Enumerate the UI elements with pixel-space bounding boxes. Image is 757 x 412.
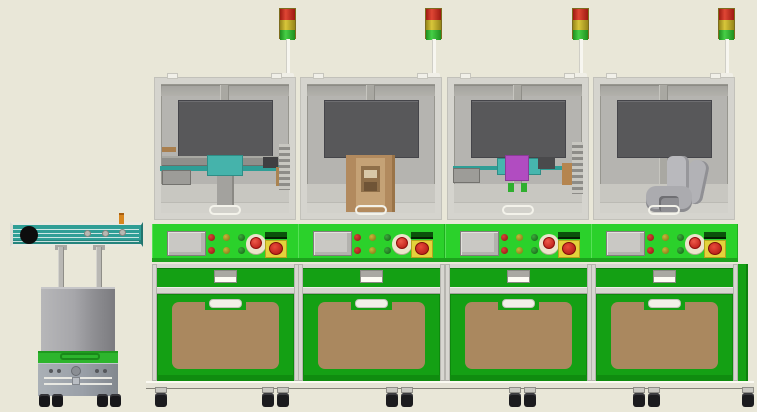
agv-wheel xyxy=(52,394,63,407)
caster-wheel xyxy=(400,387,414,408)
station-4 xyxy=(591,0,738,412)
indicator-light-yellow xyxy=(223,234,230,241)
indicator-light-yellow xyxy=(369,247,376,254)
machine-base-rail xyxy=(146,381,754,389)
agv-wheel xyxy=(110,394,121,407)
caster-tire xyxy=(386,393,398,407)
caster-wheel xyxy=(523,387,537,408)
hmi-panel xyxy=(167,231,206,256)
indicator-light-yellow xyxy=(662,247,669,254)
caster-tire xyxy=(509,393,521,407)
agv-drive-pulley xyxy=(20,226,38,244)
cabinet-door-panel xyxy=(172,302,279,369)
indicator-light-green xyxy=(238,247,245,254)
hmi-panel xyxy=(313,231,352,256)
cyan-carrier xyxy=(207,155,243,176)
control-box xyxy=(162,170,191,185)
gripper-finger xyxy=(521,183,527,192)
indicator-light-red xyxy=(647,247,654,254)
cabinet-door-handle xyxy=(502,299,535,308)
cabinet-door-handle xyxy=(648,299,681,308)
enclosure-door-handle xyxy=(355,205,387,215)
indicator-light-yellow xyxy=(662,234,669,241)
caster-wheel xyxy=(154,387,168,408)
indicator-light-red xyxy=(501,247,508,254)
cabinet-mid-rail xyxy=(450,287,587,294)
side-shelf xyxy=(162,147,176,152)
gear-stack xyxy=(279,144,290,190)
caster-wheel xyxy=(741,387,755,408)
main-switch-knob xyxy=(708,242,722,255)
indicator-light-red xyxy=(208,247,215,254)
caster-wheel xyxy=(632,387,646,408)
agv-orange-fitting xyxy=(119,213,124,224)
main-switch-knob xyxy=(562,242,576,255)
cabinet-end-panel xyxy=(738,264,748,381)
main-switch-plate xyxy=(558,232,580,239)
hmi-panel xyxy=(606,231,645,256)
indicator-light-green xyxy=(531,234,538,241)
caster-tire xyxy=(742,393,754,407)
caster-tire xyxy=(401,393,413,407)
indicator-light-green xyxy=(384,247,391,254)
caster-tire xyxy=(648,393,660,407)
agv-center-knob xyxy=(71,366,81,376)
drawer-handle xyxy=(214,270,237,283)
caster-wheel xyxy=(261,387,275,408)
agv-roller xyxy=(102,230,109,237)
cabinet-door-handle xyxy=(209,299,242,308)
indicator-light-yellow xyxy=(516,247,523,254)
caster-wheel xyxy=(385,387,399,408)
caster-wheel xyxy=(508,387,522,408)
station-2 xyxy=(298,0,445,412)
enclosure-door-handle xyxy=(209,205,241,215)
indicator-light-green xyxy=(531,247,538,254)
agv-band-recess xyxy=(60,353,100,360)
gripper-finger xyxy=(508,183,514,192)
agv-wheel xyxy=(39,394,50,407)
emergency-stop-button xyxy=(396,237,408,249)
indicator-light-red xyxy=(354,234,361,241)
support-leg xyxy=(217,176,234,206)
fixture-slot xyxy=(364,182,377,191)
main-switch-plate xyxy=(411,232,433,239)
drive-block xyxy=(538,157,555,169)
drawer-handle xyxy=(360,270,383,283)
cabinet-door-handle xyxy=(355,299,388,308)
agv-button xyxy=(103,369,107,373)
hmi-panel xyxy=(460,231,499,256)
indicator-light-yellow xyxy=(223,247,230,254)
cabinet-door-panel xyxy=(465,302,572,369)
caster-tire xyxy=(262,393,274,407)
indicator-light-green xyxy=(384,234,391,241)
indicator-light-red xyxy=(501,234,508,241)
fixture-plate xyxy=(364,170,377,178)
indicator-light-green xyxy=(677,247,684,254)
drawer-handle xyxy=(507,270,530,283)
cabinet-door-panel xyxy=(318,302,425,369)
agv-roller xyxy=(119,229,126,236)
main-switch-plate xyxy=(704,232,726,239)
agv-support-mast xyxy=(58,247,64,289)
control-box xyxy=(453,168,480,183)
agv-roller xyxy=(84,230,91,237)
caster-tire xyxy=(277,393,289,407)
emergency-stop-button xyxy=(250,237,262,249)
agv-support-mast xyxy=(96,247,102,289)
magenta-head xyxy=(505,155,529,181)
indicator-light-yellow xyxy=(516,234,523,241)
drawer-handle xyxy=(653,270,676,283)
indicator-light-red xyxy=(647,234,654,241)
cad-scene xyxy=(0,0,757,412)
agv-button xyxy=(95,369,99,373)
indicator-light-green xyxy=(677,234,684,241)
agv-lift-body xyxy=(41,287,115,351)
agv-shuttle-cart xyxy=(8,212,148,411)
station-3 xyxy=(445,0,592,412)
indicator-light-red xyxy=(208,234,215,241)
caster-wheel xyxy=(647,387,661,408)
caster-tire xyxy=(155,393,167,407)
agv-latch xyxy=(72,377,80,385)
indicator-light-red xyxy=(354,247,361,254)
station-1 xyxy=(152,0,299,412)
indicator-light-green xyxy=(238,234,245,241)
cabinet-mid-rail xyxy=(157,287,294,294)
agv-button xyxy=(49,369,53,373)
caster-tire xyxy=(524,393,536,407)
cabinet-mid-rail xyxy=(303,287,440,294)
caster-tire xyxy=(633,393,645,407)
cabinet-mid-rail xyxy=(596,287,733,294)
agv-button xyxy=(57,369,61,373)
emergency-stop-button xyxy=(689,237,701,249)
main-switch-knob xyxy=(415,242,429,255)
main-switch-plate xyxy=(265,232,287,239)
caster-wheel xyxy=(276,387,290,408)
enclosure-door-handle xyxy=(648,205,680,215)
emergency-stop-button xyxy=(543,237,555,249)
gear-stack xyxy=(572,142,583,194)
cabinet-door-panel xyxy=(611,302,718,369)
indicator-light-yellow xyxy=(369,234,376,241)
agv-wheel xyxy=(97,394,108,407)
enclosure-door-handle xyxy=(502,205,534,215)
main-switch-knob xyxy=(269,242,283,255)
